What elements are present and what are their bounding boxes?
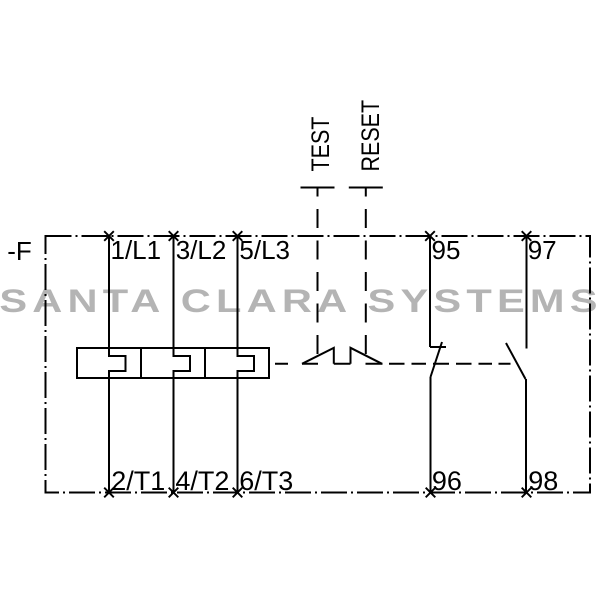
svg-text:3/L2: 3/L2 — [176, 235, 227, 265]
svg-text:TEST: TEST — [306, 117, 334, 172]
svg-text:1/L1: 1/L1 — [111, 235, 162, 265]
svg-text:98: 98 — [528, 466, 558, 496]
svg-text:2/T1: 2/T1 — [111, 466, 165, 496]
svg-text:6/T3: 6/T3 — [239, 466, 293, 496]
svg-text:5/L3: 5/L3 — [239, 235, 290, 265]
svg-text:-F: -F — [7, 236, 32, 266]
svg-text:SANTA CLARA SYSTEMS: SANTA CLARA SYSTEMS — [0, 283, 600, 319]
svg-text:95: 95 — [432, 235, 461, 265]
svg-text:97: 97 — [528, 235, 557, 265]
svg-text:RESET: RESET — [356, 100, 384, 172]
svg-text:4/T2: 4/T2 — [175, 466, 229, 496]
svg-text:96: 96 — [432, 466, 462, 496]
